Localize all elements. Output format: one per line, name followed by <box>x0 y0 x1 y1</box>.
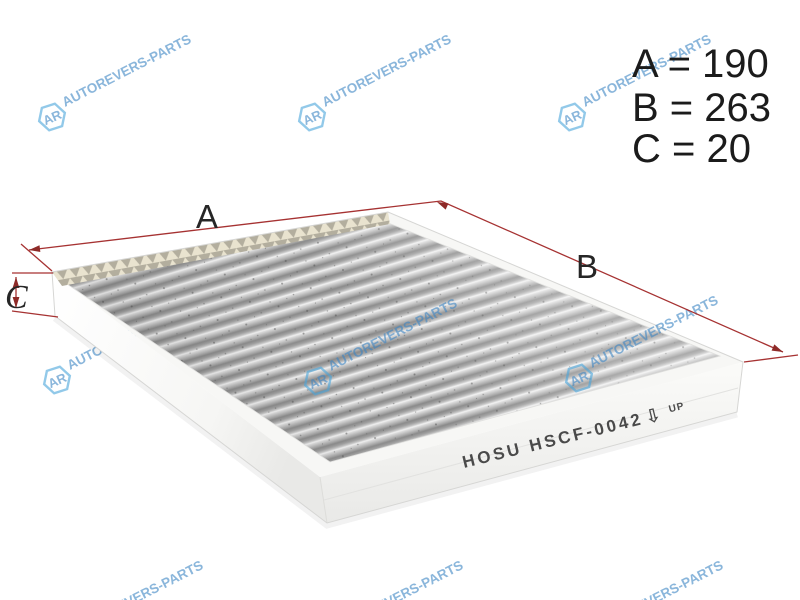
filter-diagram: AR AUTOREVERS-PARTS <box>0 0 800 600</box>
watermark <box>36 31 194 132</box>
dimension-arrowhead <box>772 344 785 355</box>
dimension-label-c: C <box>5 279 28 316</box>
watermark <box>308 557 466 600</box>
dimension-value-c: C = 20 <box>632 127 751 171</box>
watermark <box>568 557 726 600</box>
dimension-label-a: A <box>196 198 218 235</box>
cabin-air-filter: HOSU HSCF-0042 ⇩ UP <box>52 212 743 525</box>
product-image: AR AUTOREVERS-PARTS <box>0 0 800 600</box>
watermark <box>296 31 454 132</box>
watermark <box>48 557 206 600</box>
dimension-value-b: B = 263 <box>632 86 771 130</box>
leader-right-corner <box>744 355 798 362</box>
dimension-label-b: B <box>576 248 598 285</box>
dimension-arrowhead <box>436 199 449 210</box>
measurement-values: A = 190 B = 263 C = 20 <box>632 42 771 171</box>
dimension-value-a: A = 190 <box>632 42 769 86</box>
